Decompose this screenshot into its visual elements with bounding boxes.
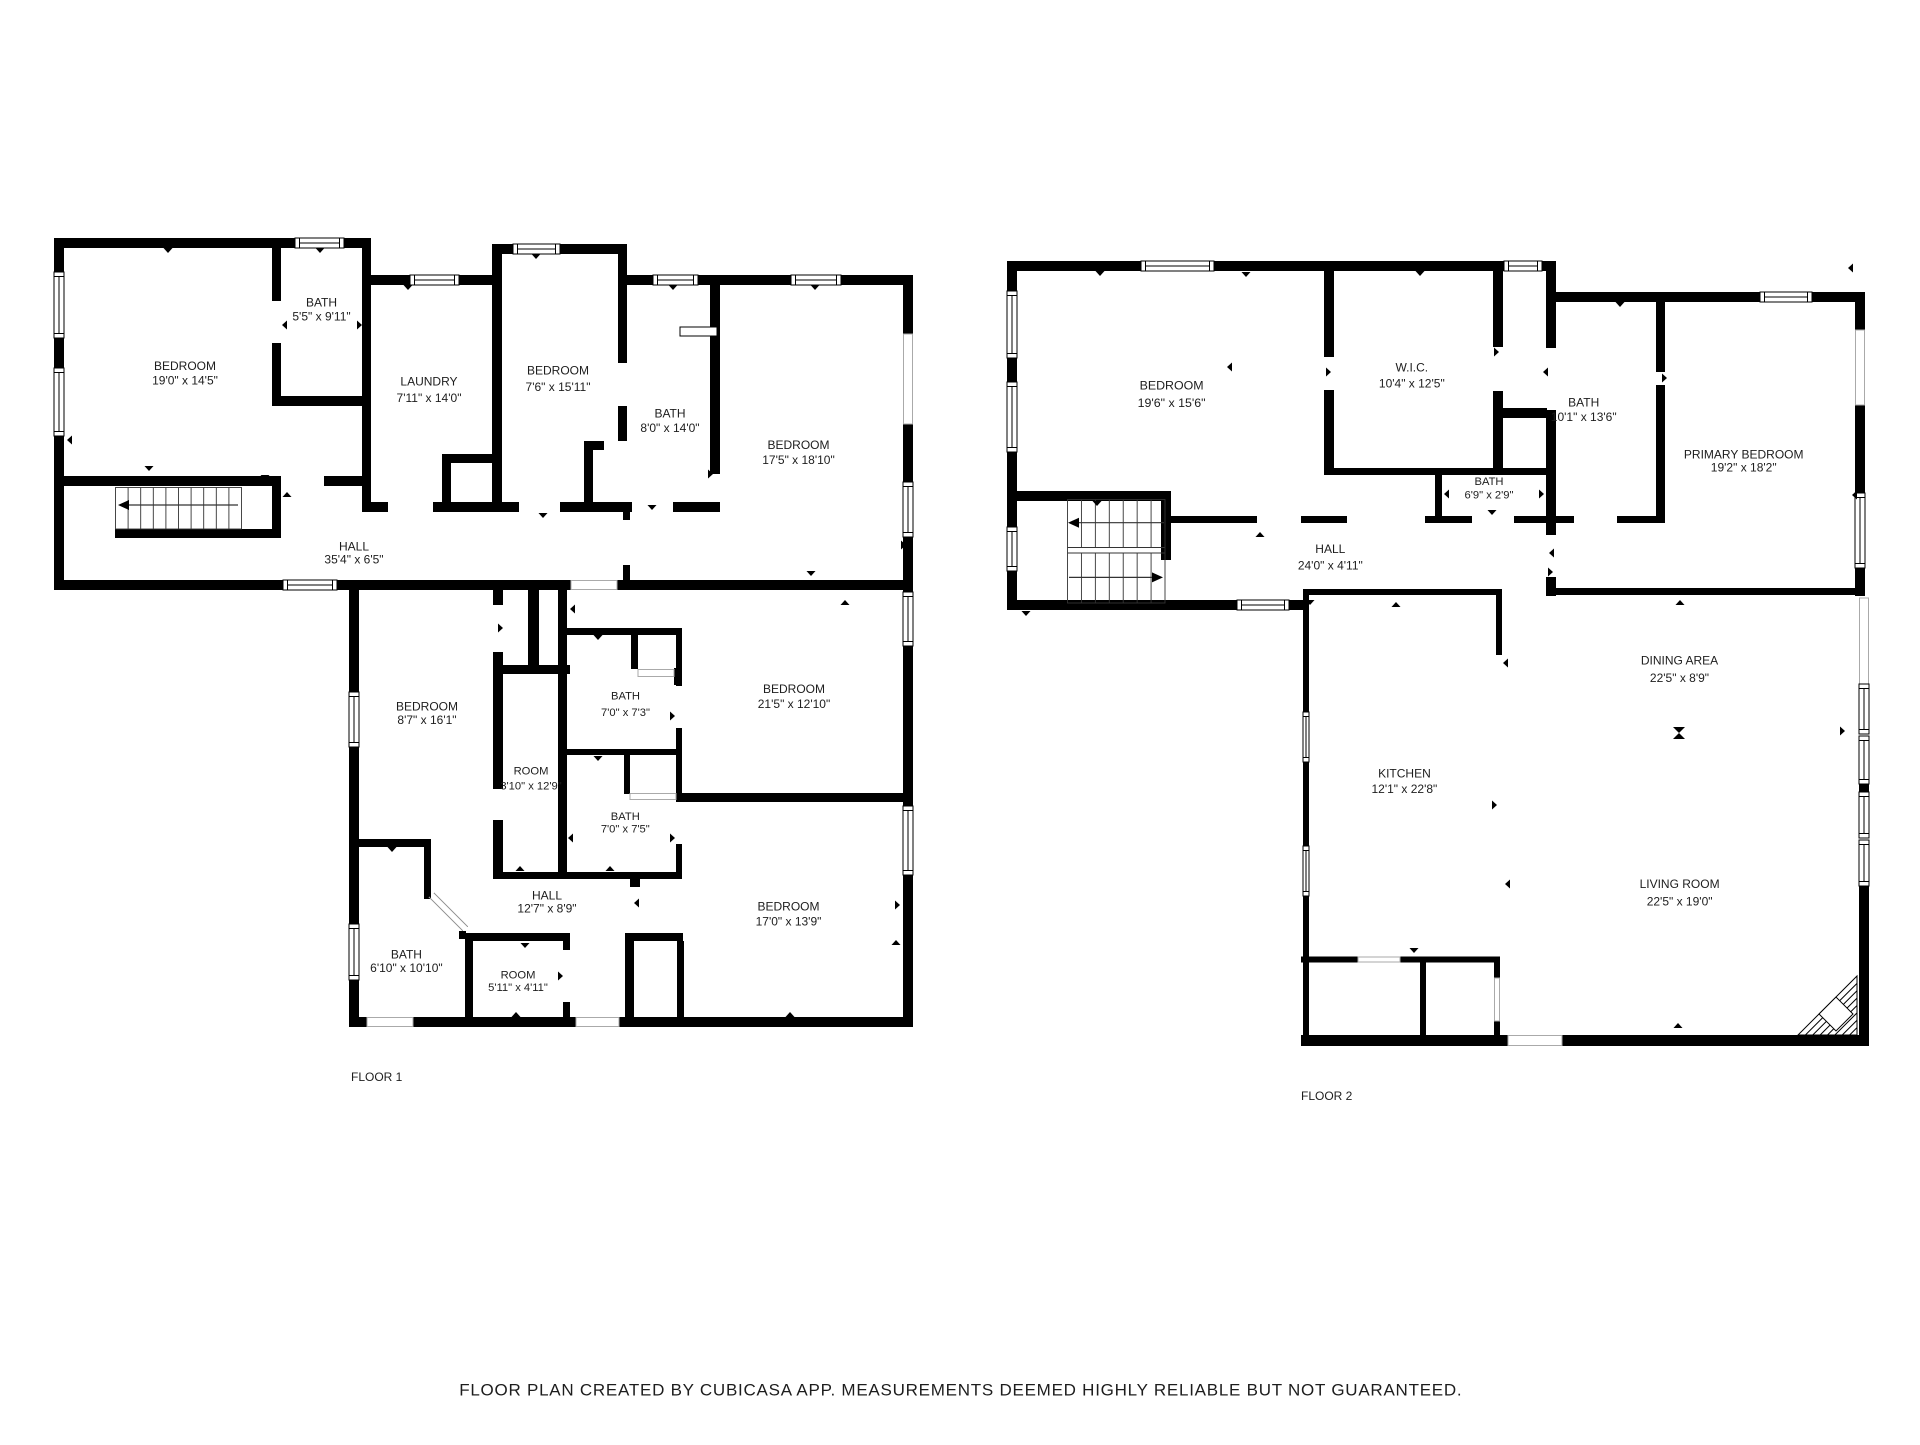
svg-text:35'4" x 6'5": 35'4" x 6'5" bbox=[324, 553, 383, 567]
svg-text:BEDROOM: BEDROOM bbox=[154, 359, 216, 373]
svg-text:22'5" x 8'9": 22'5" x 8'9" bbox=[1650, 671, 1709, 685]
svg-text:BATH: BATH bbox=[391, 948, 422, 962]
svg-text:BATH: BATH bbox=[1568, 395, 1599, 409]
svg-text:FLOOR PLAN CREATED BY CUBICASA: FLOOR PLAN CREATED BY CUBICASA APP. MEAS… bbox=[459, 1381, 1462, 1400]
svg-text:BEDROOM: BEDROOM bbox=[763, 682, 825, 696]
svg-text:BEDROOM: BEDROOM bbox=[767, 438, 829, 452]
svg-text:17'0" x 13'9": 17'0" x 13'9" bbox=[756, 915, 822, 929]
svg-text:10'1" x 13'6": 10'1" x 13'6" bbox=[1551, 410, 1617, 424]
svg-text:BEDROOM: BEDROOM bbox=[396, 700, 458, 714]
svg-text:LAUNDRY: LAUNDRY bbox=[400, 375, 457, 389]
svg-text:DINING AREA: DINING AREA bbox=[1641, 654, 1718, 668]
svg-text:BEDROOM: BEDROOM bbox=[527, 363, 589, 377]
svg-text:LIVING ROOM: LIVING ROOM bbox=[1640, 877, 1720, 891]
svg-text:BATH: BATH bbox=[1474, 476, 1503, 488]
svg-text:BEDROOM: BEDROOM bbox=[757, 900, 819, 914]
svg-text:19'0" x 14'5": 19'0" x 14'5" bbox=[152, 374, 218, 388]
svg-text:19'6" x 15'6": 19'6" x 15'6" bbox=[1138, 396, 1206, 410]
svg-text:BEDROOM: BEDROOM bbox=[1140, 379, 1204, 393]
svg-text:12'1" x 22'8": 12'1" x 22'8" bbox=[1371, 782, 1437, 796]
svg-text:17'5" x 18'10": 17'5" x 18'10" bbox=[762, 453, 835, 467]
svg-text:FLOOR 1: FLOOR 1 bbox=[351, 1070, 403, 1084]
svg-text:24'0" x 4'11": 24'0" x 4'11" bbox=[1298, 559, 1363, 573]
svg-text:7'0" x 7'5": 7'0" x 7'5" bbox=[601, 824, 650, 836]
svg-text:7'0" x 7'3": 7'0" x 7'3" bbox=[601, 707, 650, 719]
svg-text:19'2" x 18'2": 19'2" x 18'2" bbox=[1711, 460, 1777, 474]
svg-text:7'11" x 14'0": 7'11" x 14'0" bbox=[397, 391, 462, 405]
svg-text:W.I.C.: W.I.C. bbox=[1395, 361, 1428, 375]
svg-text:HALL: HALL bbox=[532, 888, 562, 902]
svg-text:FLOOR 2: FLOOR 2 bbox=[1301, 1089, 1353, 1103]
svg-text:21'5" x 12'10": 21'5" x 12'10" bbox=[758, 697, 831, 711]
svg-text:BATH: BATH bbox=[611, 811, 640, 823]
svg-text:PRIMARY BEDROOM: PRIMARY BEDROOM bbox=[1684, 447, 1804, 461]
svg-text:8'0" x 14'0": 8'0" x 14'0" bbox=[640, 421, 699, 435]
svg-text:BATH: BATH bbox=[611, 691, 640, 703]
svg-text:7'6" x 15'11": 7'6" x 15'11" bbox=[526, 380, 591, 394]
svg-text:ROOM: ROOM bbox=[501, 970, 536, 982]
svg-text:3'10" x 12'9": 3'10" x 12'9" bbox=[500, 781, 561, 793]
svg-text:HALL: HALL bbox=[339, 539, 369, 553]
svg-text:5'5" x 9'11": 5'5" x 9'11" bbox=[292, 310, 350, 324]
svg-text:6'10" x 10'10": 6'10" x 10'10" bbox=[370, 961, 443, 975]
svg-text:ROOM: ROOM bbox=[514, 766, 549, 778]
svg-text:22'5" x 19'0": 22'5" x 19'0" bbox=[1647, 895, 1713, 909]
svg-text:10'4" x 12'5": 10'4" x 12'5" bbox=[1379, 377, 1445, 391]
svg-text:8'7" x 16'1": 8'7" x 16'1" bbox=[397, 713, 456, 727]
svg-text:6'9" x 2'9": 6'9" x 2'9" bbox=[1465, 489, 1514, 501]
svg-text:BATH: BATH bbox=[306, 296, 337, 310]
svg-text:BATH: BATH bbox=[654, 407, 685, 421]
svg-text:HALL: HALL bbox=[1315, 542, 1345, 556]
svg-text:12'7" x 8'9": 12'7" x 8'9" bbox=[517, 902, 576, 916]
svg-text:5'11" x 4'11": 5'11" x 4'11" bbox=[488, 982, 548, 994]
svg-text:KITCHEN: KITCHEN bbox=[1378, 766, 1431, 780]
